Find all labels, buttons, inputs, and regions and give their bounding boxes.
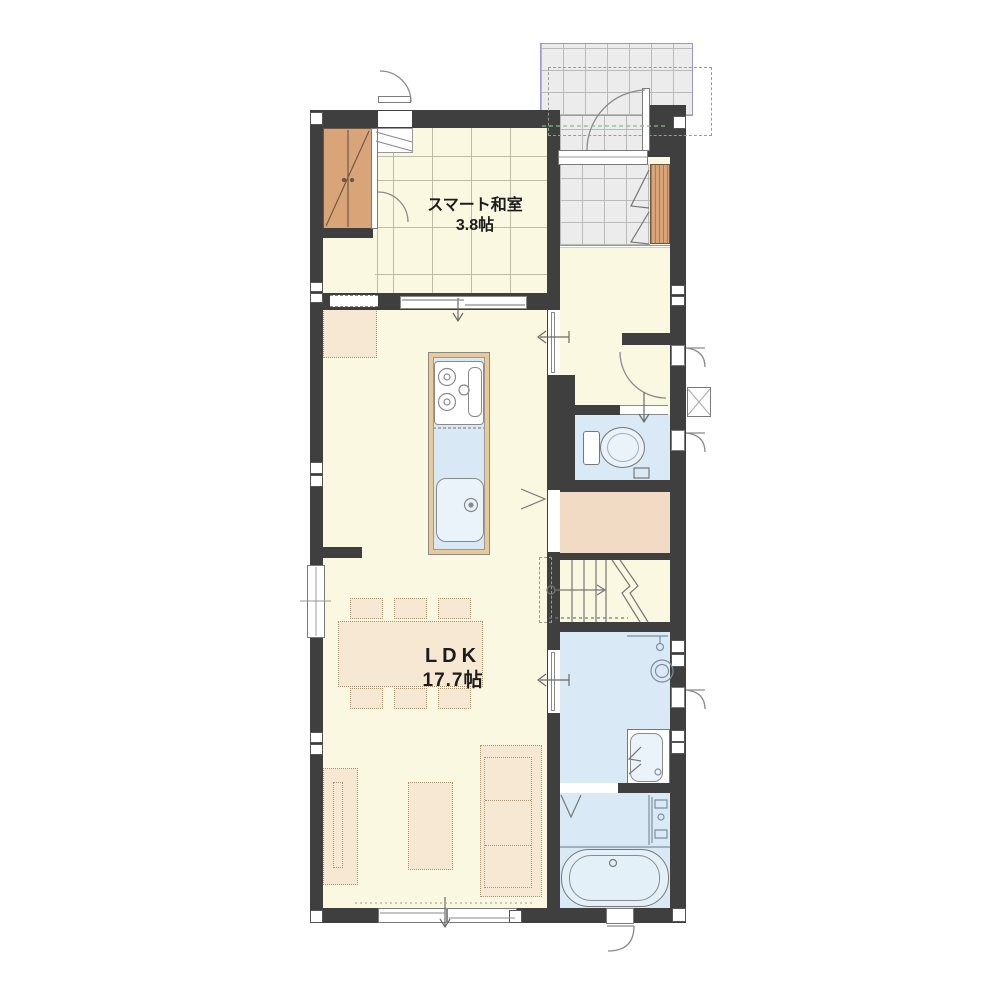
casement-window-1: [671, 345, 685, 366]
wall-top: [310, 110, 560, 128]
pillar-bottom-mid: [509, 910, 522, 923]
entrance-step: [558, 150, 648, 165]
window-right-wash-a: [671, 640, 685, 653]
shoe-cabinet: [650, 164, 670, 244]
window-left-hall-b: [310, 293, 323, 303]
japanese-room-shelf: [375, 128, 413, 153]
pillar-entrance-right: [673, 116, 686, 129]
tatami-sliding-doors: [400, 296, 527, 309]
japanese-room-label: スマート和室 3.8帖: [408, 196, 542, 236]
window-right-low-a: [671, 730, 685, 742]
wall-hall-stub: [622, 333, 670, 345]
stove-grill: [468, 367, 482, 417]
pillar-bottom-left: [310, 910, 323, 923]
window-left-low-a: [310, 732, 323, 743]
toilet-tank: [583, 431, 600, 465]
floor-plan-canvas: スマート和室 3.8帖 LDK 17.7帖: [0, 0, 1000, 1000]
exterior-unit-box: [687, 387, 711, 417]
genkan-tiles: [560, 164, 650, 245]
tv: [333, 782, 343, 868]
wall-right: [670, 157, 686, 923]
sofa-seat: [484, 757, 532, 888]
wall-stub-left-mid: [323, 547, 362, 558]
pillar-top-left: [310, 112, 323, 125]
back-door-leaf: [378, 96, 411, 103]
living-window-mullion: [446, 908, 448, 923]
casement-arc-3: [686, 690, 705, 709]
washroom-door-panel: [551, 652, 555, 711]
entrance-door-leaf: [642, 88, 650, 151]
chair: [350, 598, 383, 619]
window-right-wash-b: [671, 654, 685, 667]
bath-vent-door: [606, 908, 634, 924]
wall-stair-bottom: [547, 622, 670, 632]
window-right-hall-a: [671, 285, 685, 295]
window-left-mid-a: [310, 462, 323, 474]
window-left-low-b: [310, 744, 323, 755]
closet: [323, 128, 373, 229]
wall-toilet-left-block: [547, 375, 575, 415]
pillar-bottom-right: [672, 908, 686, 922]
sofa-divider: [485, 800, 531, 801]
tatami-screen-track: [330, 295, 378, 307]
bath-door-opening: [560, 783, 618, 793]
canopy-outline: [548, 67, 712, 136]
ldk-name: LDK: [396, 644, 510, 669]
kitchen-sink: [436, 478, 484, 542]
genkan-step-edge: [560, 245, 670, 248]
storage-door-opening: [548, 490, 560, 552]
vanity-bowl: [630, 733, 663, 782]
casement-arc-1: [686, 348, 705, 367]
wall-toilet-bottom: [557, 480, 670, 492]
storage-floor: [560, 492, 670, 553]
ldk-label: LDK 17.7帖: [396, 644, 510, 693]
bathtub-inner: [569, 855, 660, 901]
toilet-sliding-door: [620, 405, 668, 415]
back-door-opening: [378, 111, 412, 127]
window-left-mid-b: [310, 475, 323, 487]
sofa-divider: [485, 845, 531, 846]
casement-window-2: [671, 430, 685, 451]
ldk-size: 17.7帖: [396, 669, 510, 693]
stair-rail-outline: [539, 557, 552, 623]
window-right-low-b: [671, 742, 685, 754]
chair: [394, 598, 427, 619]
wall-stair-top: [547, 553, 670, 560]
wall-stub-below-closet: [323, 228, 373, 238]
japanese-room-size: 3.8帖: [408, 216, 542, 236]
wall-left: [310, 110, 323, 923]
wall-toilet-top: [575, 405, 622, 415]
window-right-hall-b: [671, 296, 685, 306]
bath-vent-arc: [607, 926, 634, 951]
casement-arc-2: [686, 433, 705, 452]
toilet-seat: [607, 433, 639, 462]
chair: [350, 688, 383, 709]
japanese-room-name: スマート和室: [408, 196, 542, 216]
counter-desk: [323, 308, 377, 358]
hall-door-panel: [551, 312, 555, 373]
closet-doors: [371, 128, 378, 229]
casement-window-3: [671, 687, 685, 708]
window-left-large: [307, 565, 325, 638]
chair: [438, 598, 471, 619]
wall-tatami-right: [547, 110, 560, 310]
coffee-table: [408, 782, 453, 870]
window-left-hall-a: [310, 282, 323, 292]
